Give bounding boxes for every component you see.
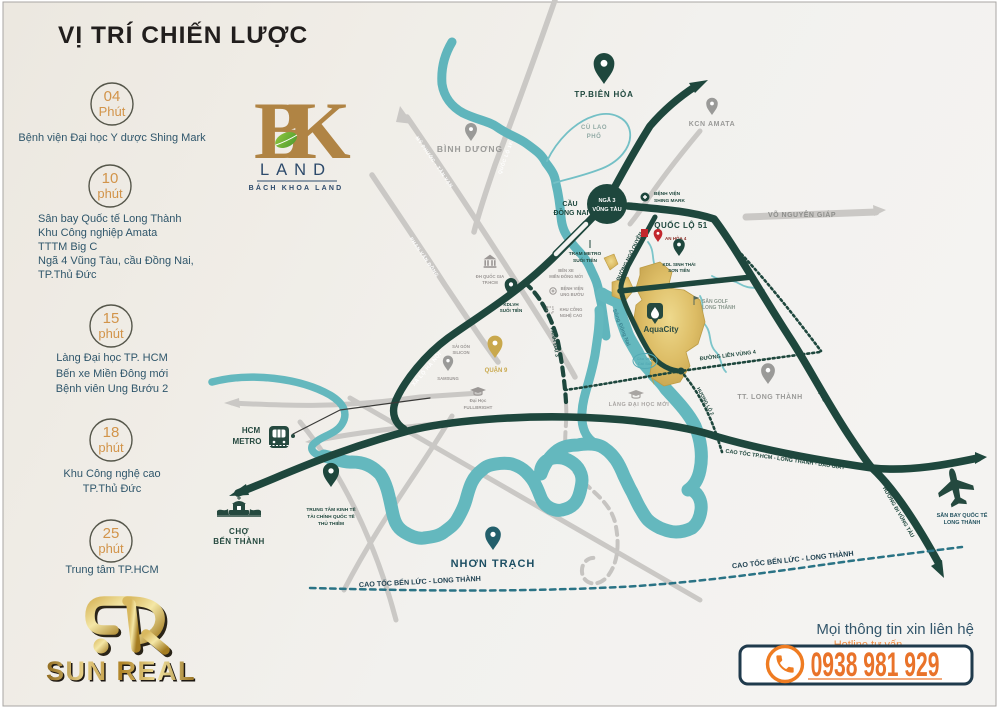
svg-text:MIỀN ĐÔNG MỚI: MIỀN ĐÔNG MỚI (549, 274, 583, 279)
svg-text:BỆNH VIỆN: BỆNH VIỆN (561, 286, 584, 291)
svg-text:LONG THÀNH: LONG THÀNH (702, 304, 736, 311)
svg-text:AquaCity: AquaCity (643, 325, 679, 334)
svg-text:TTTM Big C: TTTM Big C (38, 241, 97, 253)
svg-text:TP.Thủ Đức: TP.Thủ Đức (38, 269, 97, 281)
svg-text:VŨNG TÀU: VŨNG TÀU (592, 206, 621, 213)
svg-text:HCM: HCM (242, 426, 261, 435)
svg-text:Cái Sứt: Cái Sứt (638, 361, 653, 366)
svg-text:NHƠN TRẠCH: NHƠN TRẠCH (451, 558, 536, 570)
svg-text:phút: phút (97, 186, 123, 201)
svg-text:BÁCH KHOA LAND: BÁCH KHOA LAND (249, 183, 344, 192)
svg-text:FULLBRIGHT: FULLBRIGHT (464, 405, 493, 410)
svg-text:Phút: Phút (99, 104, 126, 119)
svg-text:Ngã 4 Vũng Tàu, cầu Đồng Nai,: Ngã 4 Vũng Tàu, cầu Đồng Nai, (38, 255, 194, 267)
svg-text:SÂN BAY QUỐC TẾ: SÂN BAY QUỐC TẾ (937, 512, 988, 519)
svg-text:PHỐ: PHỐ (587, 133, 602, 140)
svg-text:BẾN XE: BẾN XE (558, 268, 574, 273)
svg-text:KHU CÔNG: KHU CÔNG (560, 307, 583, 312)
svg-text:VỊ TRÍ CHIẾN LƯỢC: VỊ TRÍ CHIẾN LƯỢC (58, 21, 308, 49)
svg-text:Bến xe Miền Đông mới: Bến xe Miền Đông mới (56, 368, 168, 380)
svg-text:LÀNG ĐẠI HỌC MỚI: LÀNG ĐẠI HỌC MỚI (609, 400, 670, 408)
svg-text:TP.HCM: TP.HCM (482, 280, 498, 285)
svg-text:18: 18 (103, 424, 120, 441)
svg-text:phút: phút (98, 541, 124, 556)
svg-text:LONG THÀNH: LONG THÀNH (944, 519, 981, 526)
svg-text:TT. LONG THÀNH: TT. LONG THÀNH (737, 392, 802, 401)
svg-text:15: 15 (103, 310, 120, 327)
svg-text:TRUNG TÂM KINH TẾ: TRUNG TÂM KINH TẾ (306, 506, 356, 513)
svg-text:Mọi thông tin xin liên hệ: Mọi thông tin xin liên hệ (816, 621, 974, 638)
svg-text:BẾN THÀNH: BẾN THÀNH (213, 536, 265, 546)
svg-text:SÀI GÒN: SÀI GÒN (452, 344, 470, 349)
svg-text:LAND: LAND (260, 161, 332, 179)
svg-text:Đại Học: Đại Học (470, 398, 487, 403)
svg-text:SUN REAL: SUN REAL (46, 656, 196, 686)
svg-text:SILICON: SILICON (453, 350, 470, 355)
svg-text:SAMSUNG: SAMSUNG (437, 376, 458, 381)
svg-text:10: 10 (102, 170, 119, 187)
svg-text:NGÃ 3: NGÃ 3 (598, 197, 615, 204)
svg-text:TP.Thủ Đức: TP.Thủ Đức (83, 483, 142, 495)
svg-text:CÙ LAO: CÙ LAO (581, 124, 607, 131)
svg-text:25: 25 (103, 525, 120, 542)
svg-text:Trung tâm TP.HCM: Trung tâm TP.HCM (65, 564, 158, 576)
svg-text:SÂN GOLF: SÂN GOLF (702, 298, 728, 305)
svg-text:ĐH QUỐC GIA: ĐH QUỐC GIA (476, 274, 504, 279)
svg-text:QUẬN 9: QUẬN 9 (485, 367, 508, 374)
svg-text:KDLVH: KDLVH (503, 302, 518, 307)
svg-text:Khu Công nghiệp Amata: Khu Công nghiệp Amata (38, 227, 158, 239)
svg-text:Bệnh viện Đại học Y dược Shin: Bệnh viện Đại học Y dược Shing Mark (18, 132, 206, 144)
svg-text:QUỐC LỘ 51: QUỐC LỘ 51 (654, 220, 708, 230)
svg-text:0938 981 929: 0938 981 929 (811, 645, 940, 683)
svg-text:SHING MARK: SHING MARK (654, 198, 685, 204)
svg-text:NGHỆ CAO: NGHỆ CAO (560, 313, 583, 318)
svg-text:TP.BIÊN HÒA: TP.BIÊN HÒA (574, 90, 633, 99)
svg-text:phút: phút (98, 440, 124, 455)
svg-text:SƠN TIÊN: SƠN TIÊN (668, 266, 690, 273)
svg-text:CHỢ: CHỢ (229, 527, 249, 536)
svg-text:TRẠM METRO: TRẠM METRO (569, 251, 602, 257)
svg-text:Khu Công nghệ cao: Khu Công nghệ cao (63, 468, 160, 480)
svg-text:UNG BƯỚU: UNG BƯỚU (560, 292, 584, 297)
svg-text:BÌNH DƯƠNG: BÌNH DƯƠNG (437, 144, 503, 154)
svg-text:METRO: METRO (233, 437, 262, 446)
svg-text:SUỐI TIÊN: SUỐI TIÊN (500, 306, 523, 313)
svg-text:04: 04 (104, 88, 121, 105)
svg-text:Sân bay Quốc tế Long Thành: Sân bay Quốc tế Long Thành (38, 213, 182, 225)
svg-text:Làng Đại học TP. HCM: Làng Đại học TP. HCM (56, 352, 167, 364)
svg-text:VÕ NGUYÊN GIÁP: VÕ NGUYÊN GIÁP (768, 210, 836, 219)
svg-text:phút: phút (98, 326, 124, 341)
svg-text:KCN AMATA: KCN AMATA (689, 121, 735, 128)
svg-text:Bệnh viên Ung Bướu 2: Bệnh viên Ung Bướu 2 (56, 383, 168, 395)
svg-text:KDL SINH THÁI: KDL SINH THÁI (663, 261, 696, 267)
